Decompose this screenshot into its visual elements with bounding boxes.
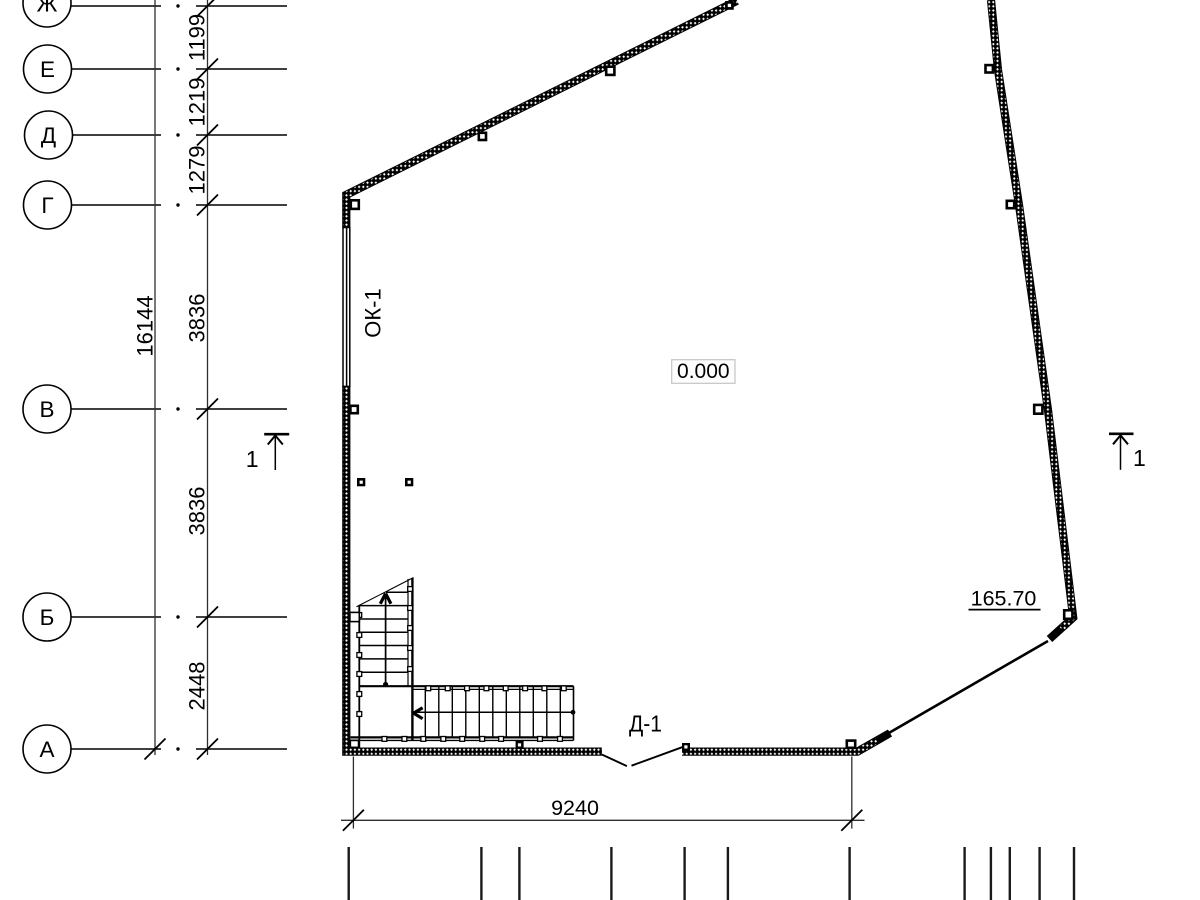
- svg-text:Ж: Ж: [37, 0, 58, 17]
- svg-text:165.70: 165.70: [971, 587, 1037, 611]
- svg-text:В: В: [39, 397, 54, 422]
- svg-text:1199: 1199: [185, 14, 210, 61]
- svg-text:А: А: [39, 737, 54, 762]
- svg-text:Д: Д: [41, 123, 56, 148]
- svg-text:1219: 1219: [185, 78, 210, 127]
- svg-text:2448: 2448: [185, 662, 210, 711]
- svg-text:Б: Б: [40, 605, 55, 630]
- svg-text:Г: Г: [41, 193, 53, 218]
- svg-text:Е: Е: [40, 57, 55, 82]
- svg-text:Д-1: Д-1: [629, 711, 662, 737]
- svg-text:3836: 3836: [185, 487, 210, 536]
- svg-text:3836: 3836: [185, 294, 210, 343]
- svg-text:ОК-1: ОК-1: [361, 288, 386, 338]
- svg-text:0.000: 0.000: [677, 360, 730, 383]
- svg-text:1279: 1279: [185, 146, 210, 195]
- svg-text:16144: 16144: [133, 295, 158, 356]
- svg-text:1: 1: [1133, 445, 1146, 471]
- svg-text:1: 1: [246, 446, 259, 472]
- svg-text:9240: 9240: [551, 796, 599, 820]
